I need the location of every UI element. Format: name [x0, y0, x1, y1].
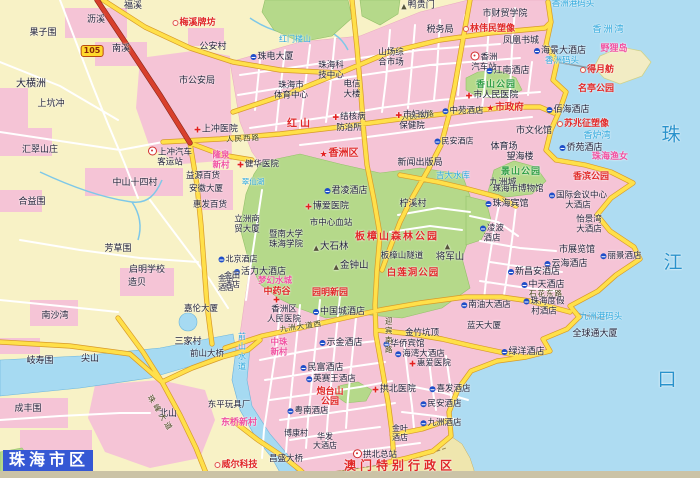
- map-label: 民安酒店: [435, 138, 474, 147]
- hotel-icon: [480, 225, 486, 231]
- map-label: 中国城酒店: [313, 307, 365, 317]
- map-label: 隆泉 新村: [212, 151, 229, 170]
- map-label: 安徽大厦: [189, 185, 223, 195]
- map-label: 金竹坑顶: [405, 329, 439, 339]
- map-label: 香洲码头: [545, 57, 579, 67]
- map-label: 粤南酒店: [287, 407, 328, 417]
- map-label: 珠海渔女: [592, 152, 628, 162]
- map-label: 前山大桥: [190, 350, 224, 360]
- map-label: 珠: [661, 124, 680, 145]
- map-label: 金叶 酒店: [392, 425, 408, 443]
- map-label: 梅溪牌坊: [172, 18, 215, 28]
- peak-icon: [401, 1, 406, 11]
- hospital-icon: [395, 112, 402, 122]
- map-label: 市政府: [486, 103, 524, 115]
- map-label: 嘉伦大厦: [184, 305, 218, 315]
- map-label: 中珠 新村: [270, 338, 287, 357]
- map-label: 民安酒店: [420, 400, 461, 410]
- map-label: 香滨公园: [573, 172, 609, 182]
- map-label: 新闻出版局: [397, 158, 442, 168]
- map-label: 东平玩具厂: [208, 401, 251, 411]
- hotel-icon: [461, 302, 467, 308]
- map-label: 国际会议中心 大酒店: [549, 191, 607, 210]
- map-label: 佰海酒店: [546, 105, 589, 115]
- map-label: 新昌安酒店: [508, 267, 560, 277]
- hospital-icon: [466, 91, 473, 101]
- hospital-icon: [409, 361, 416, 371]
- map-label: 园明新园: [312, 288, 348, 298]
- hotel-icon: [306, 376, 312, 382]
- poi-dot-icon: [580, 67, 586, 73]
- map-label: 吉大水库: [436, 172, 470, 182]
- map-label: 鸭贵门: [401, 0, 434, 11]
- map-label: 全球通大厦: [572, 329, 617, 339]
- map-label: 迎宾南路: [384, 317, 392, 355]
- map-label: 造贝: [128, 278, 146, 288]
- hotel-icon: [319, 340, 325, 346]
- map-label: 惠爱医院: [409, 360, 451, 371]
- hotel-icon: [546, 107, 552, 113]
- map-label: 口: [657, 369, 676, 390]
- hospital-icon: [194, 125, 201, 135]
- map-label: 惠发百货: [193, 201, 227, 211]
- map-label: 香山公园: [476, 80, 516, 90]
- map-label: 合益围: [18, 197, 45, 207]
- map-label: 将军山: [436, 253, 465, 264]
- map-label: 博康村: [284, 430, 308, 439]
- map-label: 中苑酒店: [442, 107, 483, 117]
- hospital-icon: [305, 202, 312, 212]
- map-label: 暨南大学 珠海学院: [269, 230, 303, 249]
- map-label: 金田 酒店: [224, 272, 240, 290]
- map-label: 福溪: [124, 1, 142, 11]
- hotel-icon: [250, 54, 256, 60]
- macau-region-label: 澳门特别行政区: [344, 459, 456, 472]
- map-label: 海景大酒店: [534, 46, 586, 56]
- map-label: 昌盛大桥: [269, 455, 303, 465]
- map-label: 珠海市 体育中心: [274, 81, 308, 100]
- bus-station-icon: [148, 146, 157, 155]
- map-label: 梦幻水城: [258, 277, 292, 287]
- hotel-icon: [508, 269, 514, 275]
- map-label: 益源百货: [186, 172, 220, 182]
- map-label: 市妇幼 保健院: [395, 111, 428, 131]
- map-label: 民富酒店: [300, 363, 343, 373]
- map-label: 人民西路: [226, 134, 260, 144]
- map-label: 板樟山森林公园: [355, 231, 439, 242]
- map-label: 博爱医院: [305, 201, 349, 212]
- map-label: 岐寿围: [26, 356, 53, 366]
- map-label: 红山: [287, 118, 313, 129]
- map-label: 立洲商 贸大厦: [234, 215, 260, 234]
- map-label: 上冲汽车 客运站: [148, 146, 192, 167]
- map-label: 市文化馆: [516, 126, 552, 136]
- map-label: 江南酒店: [486, 66, 529, 76]
- map-label: 红门楼山: [279, 36, 311, 45]
- zhuhai-city-map[interactable]: 福溪沥溪梅溪牌坊果子围南溪公安村105大横洲上坑冲汇翠山庄市公安局上冲医院上冲汽…: [0, 0, 700, 478]
- hotel-icon: [501, 349, 507, 355]
- bus-station-icon: [470, 51, 479, 60]
- hospital-icon: [237, 162, 244, 172]
- map-label: 香洲港码头: [552, 0, 595, 10]
- map-label: 启明学校: [129, 265, 165, 275]
- map-label: 示金酒店: [319, 338, 362, 348]
- map-label: 金钟山: [334, 261, 369, 273]
- map-label: 南油大酒店: [461, 301, 511, 311]
- hospital-icon: [372, 385, 379, 395]
- map-label: 上坑冲: [37, 99, 64, 109]
- hotel-icon: [485, 201, 491, 207]
- map-label: 市中心血站: [310, 219, 353, 229]
- map-label: 凌波 酒店: [480, 224, 504, 243]
- map-label: 景山公园: [501, 167, 541, 177]
- hotel-icon: [534, 48, 540, 54]
- map-label: 珠海宾馆: [485, 199, 528, 209]
- map-label: 白莲洞公园: [387, 269, 440, 280]
- map-label: 炮台山 公园: [316, 387, 343, 407]
- peak-icon: [334, 262, 339, 273]
- map-label: 公安村: [199, 42, 226, 52]
- map-label: 沥溪: [87, 15, 105, 25]
- poi-dot-icon: [172, 20, 178, 26]
- map-label: 市展览馆: [559, 245, 595, 255]
- hotel-icon: [549, 192, 555, 198]
- map-label: 得月舫: [580, 65, 614, 75]
- map-label: 林伟民塑像: [463, 24, 515, 34]
- map-label: 市财贸学院: [482, 9, 527, 19]
- map-label: 三家村: [174, 337, 201, 347]
- map-label: 香炉湾: [583, 131, 610, 141]
- hotel-icon: [521, 282, 527, 288]
- map-label: 东桥新村: [221, 418, 257, 428]
- hotel-icon: [442, 108, 448, 114]
- map-label: 结核病 防治所: [332, 113, 365, 133]
- map-label: 果子围: [29, 28, 56, 38]
- map-label: 芳草围: [104, 244, 131, 254]
- map-label: 市公安局: [179, 76, 215, 86]
- map-label: 英赛王酒店: [306, 375, 356, 385]
- map-label: 香洲区: [319, 148, 358, 160]
- map-label: 珠海科 技中心: [318, 61, 344, 80]
- map-label: 九洲酒店: [420, 419, 461, 429]
- map-label: 健华医院: [237, 161, 279, 172]
- bus-station-icon: [353, 449, 362, 458]
- map-label: 拱北医院: [372, 384, 416, 395]
- hotel-icon: [313, 309, 319, 315]
- map-label: 南溪: [112, 44, 130, 54]
- map-label: 南沙湾: [41, 311, 68, 321]
- map-label: 中山十四村: [112, 178, 157, 188]
- poi-dot-icon: [463, 26, 469, 32]
- map-label: 苏兆征塑像: [557, 119, 609, 129]
- hotel-icon: [429, 386, 435, 392]
- map-label: 柠溪村: [399, 199, 426, 209]
- peak-icon: [445, 241, 450, 251]
- map-label: 市人民医院: [466, 90, 519, 101]
- map-label: 丽景酒店: [600, 252, 641, 262]
- map-label: 江: [663, 252, 682, 273]
- hotel-icon: [420, 420, 426, 426]
- hotel-icon: [420, 401, 426, 407]
- map-label: 君凌酒店: [324, 186, 367, 196]
- map-title: 珠海市区: [3, 450, 93, 471]
- peak-icon: [314, 243, 319, 254]
- map-label: 珠海市博物馆: [492, 185, 543, 195]
- map-label: 体育场: [490, 142, 517, 152]
- hotel-icon: [287, 408, 293, 414]
- map-label: 望海楼: [506, 152, 533, 162]
- map-label: 前山水道: [237, 332, 246, 372]
- hospital-icon: [332, 114, 339, 124]
- map-label: 凤凰书城: [503, 36, 539, 46]
- hotel-icon: [300, 365, 306, 371]
- hotel-icon: [435, 139, 441, 145]
- hotel-icon: [395, 351, 401, 357]
- map-label: 香洲湾: [592, 25, 625, 35]
- map-label: 大石林: [314, 242, 349, 254]
- hotel-icon: [219, 257, 225, 263]
- map-label: 尖山: [81, 354, 99, 364]
- map-label: 大横洲: [16, 78, 46, 89]
- route-105-badge: 105: [81, 45, 104, 57]
- map-label: 成丰围: [14, 404, 41, 414]
- map-label: 喜发酒店: [429, 385, 470, 395]
- map-label: 蓝天大厦: [467, 322, 501, 332]
- map-label: 名亭公园: [578, 84, 614, 94]
- hotel-icon: [600, 253, 606, 259]
- map-label: 板樟山隧道: [381, 252, 424, 262]
- map-label: 九洲港码头: [580, 313, 623, 323]
- map-label: 电信 大楼: [343, 80, 360, 99]
- map-label: 怡景湾 大酒店: [576, 215, 602, 234]
- map-label: 野狸岛: [600, 44, 627, 54]
- star-icon: [319, 149, 327, 160]
- map-label: 珠海度假 村酒店: [523, 297, 564, 316]
- map-label: [445, 240, 451, 251]
- map-label: 翠仙湖: [242, 178, 265, 186]
- map-label: 北京酒店: [219, 256, 258, 265]
- map-label: 珠电大厦: [250, 52, 293, 62]
- poi-dot-icon: [214, 462, 220, 468]
- hotel-icon: [559, 145, 565, 151]
- star-icon: [486, 104, 494, 115]
- map-label: 中天酒店: [521, 280, 564, 290]
- map-label: 山场综 合市场: [378, 48, 404, 67]
- map-label: 绿洋酒店: [501, 347, 544, 357]
- map-label: 汇翠山庄: [22, 145, 58, 155]
- hotel-icon: [486, 68, 492, 74]
- hotel-icon: [324, 188, 330, 194]
- map-label: 税务局: [426, 25, 453, 35]
- hotel-icon: [523, 298, 529, 304]
- map-label: 威尔科技: [214, 460, 257, 470]
- map-label: 华发 大酒店: [313, 433, 337, 451]
- poi-dot-icon: [557, 121, 563, 127]
